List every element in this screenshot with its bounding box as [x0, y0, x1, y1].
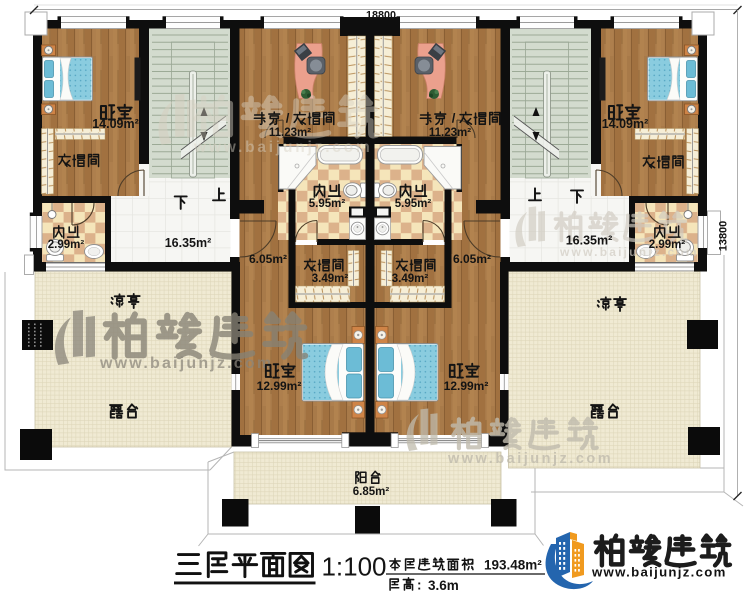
svg-text:3.6m: 3.6m	[428, 578, 459, 593]
svg-text:www.baijunjz.com: www.baijunjz.com	[99, 355, 273, 372]
svg-text:5.95m²: 5.95m²	[309, 198, 346, 210]
svg-text:6.05m²: 6.05m²	[249, 252, 287, 266]
svg-text:193.48m²: 193.48m²	[484, 558, 542, 573]
svg-text::: :	[417, 578, 422, 593]
svg-text:11.23m²: 11.23m²	[429, 127, 471, 139]
svg-text:6.05m²: 6.05m²	[453, 252, 491, 266]
svg-text:/: /	[286, 111, 290, 126]
svg-text:6.85m²: 6.85m²	[353, 486, 390, 498]
svg-text:13800: 13800	[718, 221, 730, 252]
svg-text:18800: 18800	[366, 9, 396, 21]
svg-text:14.09m²: 14.09m²	[92, 117, 139, 131]
svg-text:1:100: 1:100	[321, 552, 386, 582]
svg-text:12.99m²: 12.99m²	[257, 379, 302, 393]
svg-text:3.49m²: 3.49m²	[312, 273, 349, 285]
svg-text::: :	[470, 557, 475, 572]
svg-text:11.23m²: 11.23m²	[269, 127, 311, 139]
svg-text:16.35m²: 16.35m²	[566, 234, 613, 248]
svg-text:12.99m²: 12.99m²	[444, 379, 489, 393]
svg-text:3.49m²: 3.49m²	[392, 273, 429, 285]
svg-text:2.99m²: 2.99m²	[649, 239, 686, 251]
svg-text:/: /	[452, 111, 456, 126]
svg-text:14.09m²: 14.09m²	[602, 117, 649, 131]
svg-text:16.35m²: 16.35m²	[165, 236, 212, 250]
svg-text:www.baijunjz.com: www.baijunjz.com	[447, 451, 613, 467]
svg-text:www.baijunjz.com: www.baijunjz.com	[591, 565, 727, 580]
svg-text:www.baijunjz.com: www.baijunjz.com	[193, 139, 373, 156]
svg-text:5.95m²: 5.95m²	[395, 198, 432, 210]
svg-text:2.99m²: 2.99m²	[48, 239, 85, 251]
